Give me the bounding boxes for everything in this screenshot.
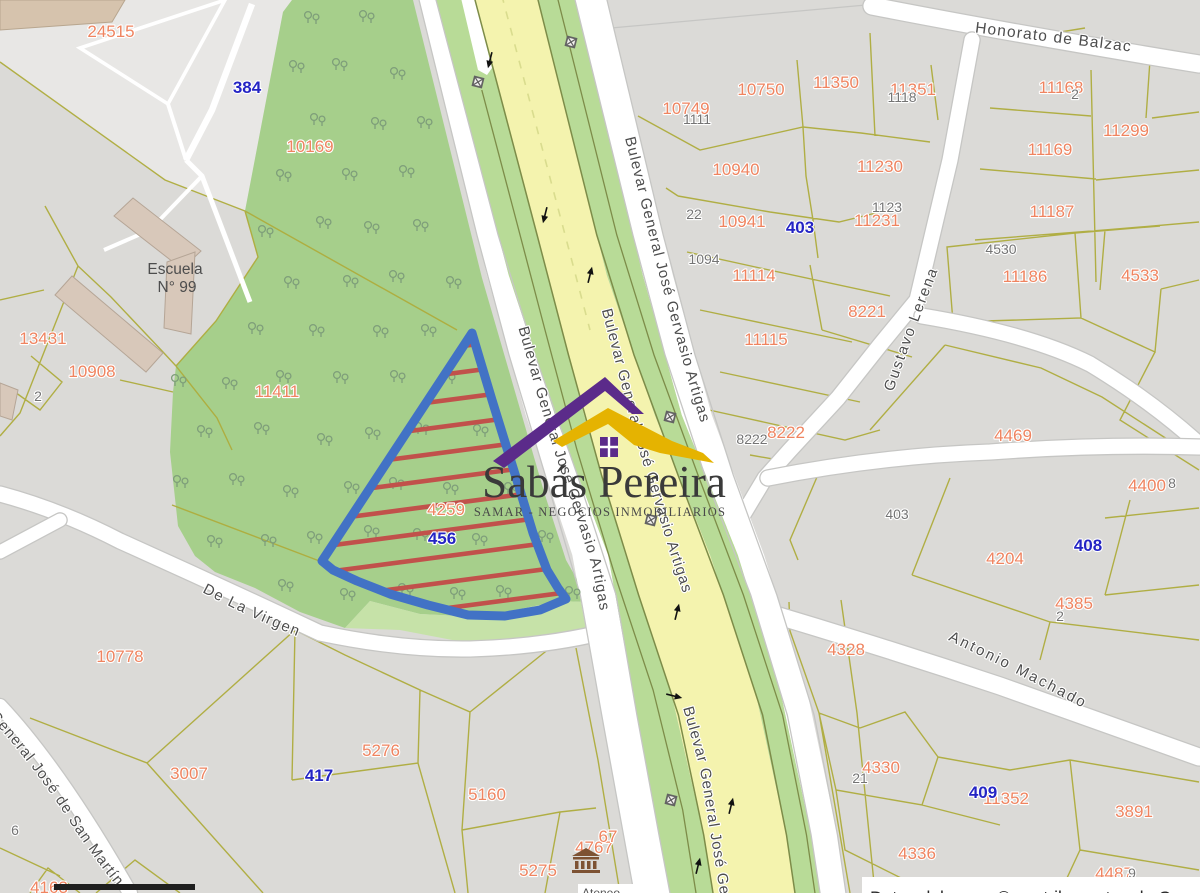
svg-text:10940: 10940: [712, 160, 759, 179]
svg-text:Sabás Pereira: Sabás Pereira: [482, 457, 726, 507]
svg-text:8222: 8222: [767, 423, 805, 442]
svg-text:3007: 3007: [170, 764, 208, 783]
svg-text:4336: 4336: [898, 844, 936, 863]
svg-text:24515: 24515: [87, 22, 134, 41]
svg-text:11230: 11230: [857, 157, 903, 176]
svg-text:11350: 11350: [813, 73, 859, 92]
svg-text:11115: 11115: [744, 330, 788, 349]
svg-text:4204: 4204: [986, 549, 1024, 568]
svg-text:10778: 10778: [96, 647, 143, 666]
svg-text:1118: 1118: [887, 89, 916, 105]
svg-text:10908: 10908: [68, 362, 115, 381]
svg-text:Datos del mapa © contribuyente: Datos del mapa © contribuyentes de OpenS…: [870, 888, 1200, 893]
svg-text:384: 384: [233, 78, 262, 97]
svg-text:3891: 3891: [1115, 802, 1153, 821]
svg-text:11411: 11411: [255, 382, 300, 401]
svg-text:6: 6: [11, 822, 19, 838]
svg-text:4328: 4328: [827, 640, 865, 659]
svg-text:403: 403: [885, 506, 909, 522]
svg-text:2: 2: [1056, 608, 1064, 624]
svg-text:4259: 4259: [427, 500, 465, 519]
svg-text:456: 456: [428, 529, 456, 548]
svg-text:4530: 4530: [985, 241, 1016, 257]
svg-text:2: 2: [1071, 86, 1079, 102]
svg-text:4469: 4469: [994, 426, 1032, 445]
svg-text:Escuela: Escuela: [147, 261, 203, 278]
svg-text:Ateneo: Ateneo: [582, 886, 620, 893]
svg-text:21: 21: [852, 770, 868, 786]
svg-text:11187: 11187: [1030, 202, 1075, 221]
svg-text:8221: 8221: [848, 302, 886, 321]
svg-text:5275: 5275: [519, 861, 557, 880]
svg-text:5276: 5276: [362, 741, 400, 760]
svg-text:11299: 11299: [1103, 121, 1149, 140]
svg-text:SAMAR - NEGOCIOS INMOBILIARIOS: SAMAR - NEGOCIOS INMOBILIARIOS: [474, 505, 726, 519]
svg-text:8: 8: [1168, 475, 1176, 491]
svg-text:8222: 8222: [736, 431, 767, 447]
svg-text:13431: 13431: [19, 329, 66, 348]
svg-text:409: 409: [969, 783, 997, 802]
svg-text:1123: 1123: [872, 199, 902, 215]
svg-text:408: 408: [1074, 536, 1102, 555]
svg-text:4400: 4400: [1128, 476, 1166, 495]
svg-text:10941: 10941: [718, 212, 765, 231]
svg-text:10750: 10750: [737, 80, 784, 99]
svg-text:1111: 1111: [683, 111, 711, 127]
svg-text:11169: 11169: [1028, 140, 1073, 159]
svg-text:1094: 1094: [688, 251, 719, 267]
svg-text:2: 2: [34, 388, 42, 404]
svg-text:67: 67: [599, 827, 618, 846]
svg-text:4533: 4533: [1121, 266, 1159, 285]
svg-text:N° 99: N° 99: [158, 279, 197, 296]
svg-text:11114: 11114: [732, 266, 776, 285]
svg-text:5160: 5160: [468, 785, 506, 804]
svg-text:11186: 11186: [1003, 267, 1048, 286]
svg-text:417: 417: [305, 766, 333, 785]
svg-text:22: 22: [686, 206, 702, 222]
svg-text:403: 403: [786, 218, 814, 237]
svg-text:10169: 10169: [286, 137, 333, 156]
